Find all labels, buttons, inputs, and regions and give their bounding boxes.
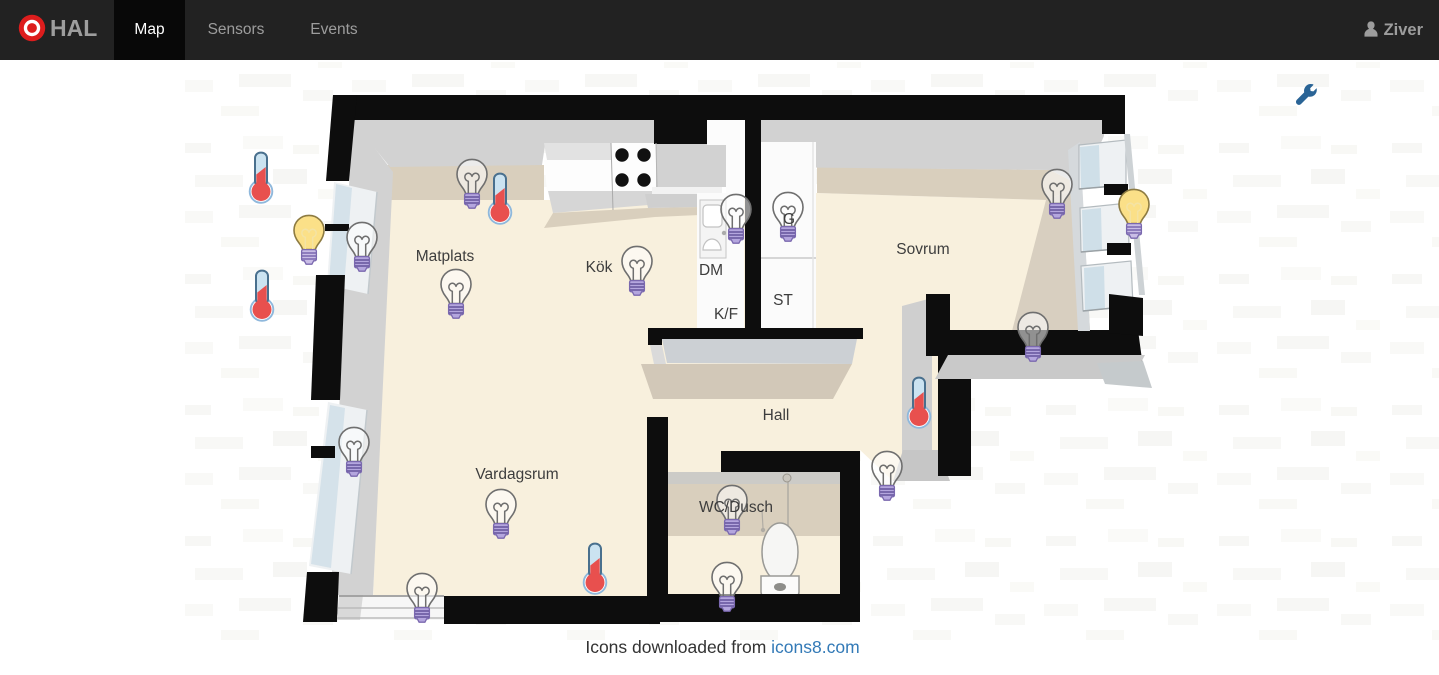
svg-text:ST: ST [773,292,793,309]
svg-text:Matplats: Matplats [416,248,475,265]
svg-text:K/F: K/F [714,306,738,323]
svg-text:DM: DM [699,262,723,279]
svg-text:Sovrum: Sovrum [896,241,949,258]
svg-text:WC/Dusch: WC/Dusch [699,499,773,516]
svg-text:Hall: Hall [763,407,790,424]
svg-text:G: G [783,211,795,228]
svg-text:Vardagsrum: Vardagsrum [475,466,558,483]
svg-text:Kök: Kök [586,259,613,276]
